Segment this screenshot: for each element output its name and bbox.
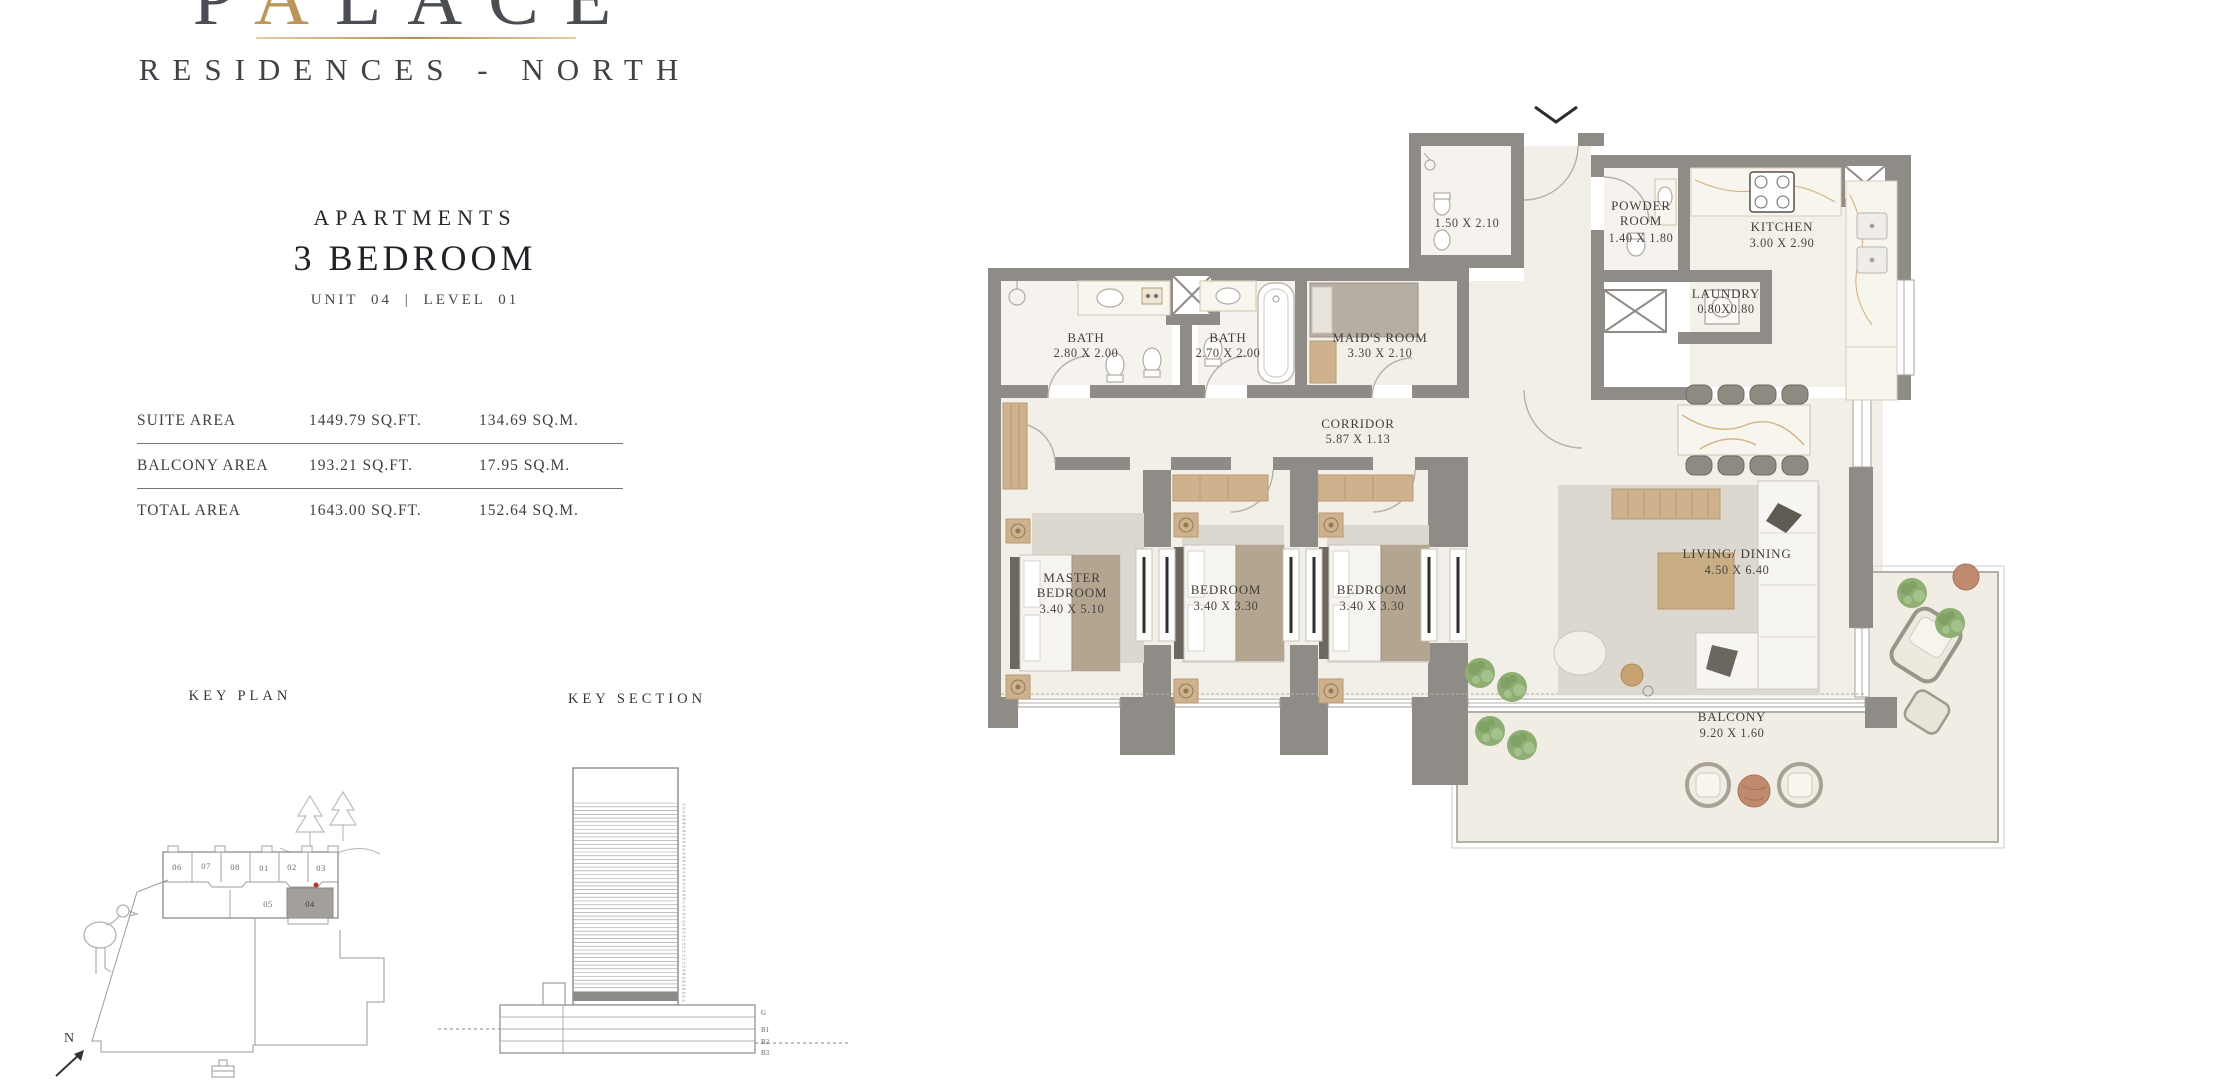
area-row-label: TOTAL AREA xyxy=(137,502,309,520)
area-row-sqft: 1449.79 SQ.FT. xyxy=(309,412,479,430)
table-row: TOTAL AREA 1643.00 SQ.FT. 152.64 SQ.M. xyxy=(137,488,623,533)
area-row-label: BALCONY AREA xyxy=(137,457,309,475)
stove-icon xyxy=(1750,172,1794,212)
svg-text:5.87 X 1.13: 5.87 X 1.13 xyxy=(1326,432,1391,446)
entry-arrow-icon xyxy=(1535,107,1577,122)
unit-level-line: UNIT 04 | LEVEL 01 xyxy=(165,292,665,309)
room-label-balcony: BALCONY xyxy=(1698,709,1766,724)
area-row-label: SUITE AREA xyxy=(137,412,309,430)
unit-marker-dot xyxy=(314,883,319,888)
floor-number-label: 01 xyxy=(682,999,686,1003)
key-plan-building: 06 07 08 01 02 03 05 04 xyxy=(163,846,338,924)
room-label-bath-top: 1.50 X 2.10 xyxy=(1435,216,1500,230)
unit-label: 03 xyxy=(316,863,326,873)
unit-label-highlighted: 04 xyxy=(305,899,315,909)
area-row-sqm: 134.69 SQ.M. xyxy=(479,412,623,430)
svg-text:2.70 X 2.00: 2.70 X 2.00 xyxy=(1196,346,1261,360)
room-label-bath2: BATH xyxy=(1209,330,1246,345)
room-label-corridor: CORRIDOR xyxy=(1321,416,1395,431)
svg-text:9.20 X 1.60: 9.20 X 1.60 xyxy=(1700,726,1765,740)
room-label-kitchen: KITCHEN xyxy=(1751,219,1814,234)
svg-text:3.30 X 2.10: 3.30 X 2.10 xyxy=(1348,346,1413,360)
svg-text:2.80 X 2.00: 2.80 X 2.00 xyxy=(1054,346,1119,360)
unit-label: 07 xyxy=(201,861,211,871)
room-label-master: MASTER xyxy=(1043,570,1101,585)
key-section-title: KEY SECTION xyxy=(537,691,737,708)
svg-text:1.40 X 1.80: 1.40 X 1.80 xyxy=(1609,231,1674,245)
room-label-living: LIVING/ DINING xyxy=(1682,546,1791,561)
table-row: BALCONY AREA 193.21 SQ.FT. 17.95 SQ.M. xyxy=(137,443,623,488)
area-row-sqm: 17.95 SQ.M. xyxy=(479,457,623,475)
svg-text:4.50 X 6.40: 4.50 X 6.40 xyxy=(1705,563,1770,577)
key-plan-title: KEY PLAN xyxy=(140,688,340,705)
level-label: B2 xyxy=(761,1038,770,1046)
table-row: SUITE AREA 1449.79 SQ.FT. 134.69 SQ.M. xyxy=(137,399,623,443)
brand-name: PALACE xyxy=(193,0,638,38)
svg-text:3.40 X 3.30: 3.40 X 3.30 xyxy=(1194,599,1259,613)
level-label: B3 xyxy=(761,1049,770,1057)
svg-text:ROOM: ROOM xyxy=(1620,213,1662,228)
svg-text:3.40 X 3.30: 3.40 X 3.30 xyxy=(1340,599,1405,613)
highlighted-floor-01 xyxy=(573,992,678,1001)
level-label: G xyxy=(761,1009,766,1017)
page-title: 3 BEDROOM xyxy=(165,237,665,279)
svg-text:3.40 X 5.10: 3.40 X 5.10 xyxy=(1040,602,1105,616)
dining-set xyxy=(1678,385,1810,475)
base-level-labels: G B1 B2 B3 xyxy=(761,1009,770,1057)
area-row-sqm: 152.64 SQ.M. xyxy=(479,502,623,520)
unit-label: 06 xyxy=(172,862,182,872)
svg-text:BEDROOM: BEDROOM xyxy=(1037,585,1108,600)
level-label: B1 xyxy=(761,1026,770,1034)
floor-plan: 1.50 X 2.10 POWDER ROOM 1.40 X 1.80 KITC… xyxy=(960,85,2040,860)
area-row-sqft: 193.21 SQ.FT. xyxy=(309,457,479,475)
key-section-drawing: 5352515049484746454443424140393837363534… xyxy=(430,755,860,1080)
tower-annex xyxy=(543,983,565,1005)
room-label-maids: MAID'S ROOM xyxy=(1332,330,1427,345)
dining-table xyxy=(1678,405,1810,455)
svg-text:0.80X0.80: 0.80X0.80 xyxy=(1697,302,1754,316)
room-label-bedroom2: BEDROOM xyxy=(1191,582,1262,597)
brand-logo: PALACE xyxy=(115,0,715,38)
area-table: SUITE AREA 1449.79 SQ.FT. 134.69 SQ.M. B… xyxy=(137,399,623,533)
area-row-sqft: 1643.00 SQ.FT. xyxy=(309,502,479,520)
unit-label: 08 xyxy=(230,862,240,872)
room-label-bath1: BATH xyxy=(1067,330,1104,345)
unit-label: 05 xyxy=(263,899,273,909)
tower-outline xyxy=(573,768,678,1005)
north-arrow-icon: N xyxy=(56,1031,84,1076)
room-label-laundry: LAUNDRY xyxy=(1692,286,1760,301)
logo-divider-line xyxy=(256,37,576,39)
section-kicker: APARTMENTS xyxy=(165,205,665,231)
svg-text:3.00 X 2.90: 3.00 X 2.90 xyxy=(1750,236,1815,250)
shaft-icon xyxy=(1604,290,1666,332)
room-label-powder: POWDER xyxy=(1611,198,1671,213)
brand-tagline: RESIDENCES - NORTH xyxy=(115,52,715,88)
unit-label: 02 xyxy=(287,862,297,872)
flamingo-icon xyxy=(84,905,137,974)
unit-label: 01 xyxy=(259,863,269,873)
key-plan-drawing: 06 07 08 01 02 03 05 04 N xyxy=(40,770,440,1080)
room-label-bedroom3: BEDROOM xyxy=(1337,582,1408,597)
north-label: N xyxy=(64,1031,74,1046)
